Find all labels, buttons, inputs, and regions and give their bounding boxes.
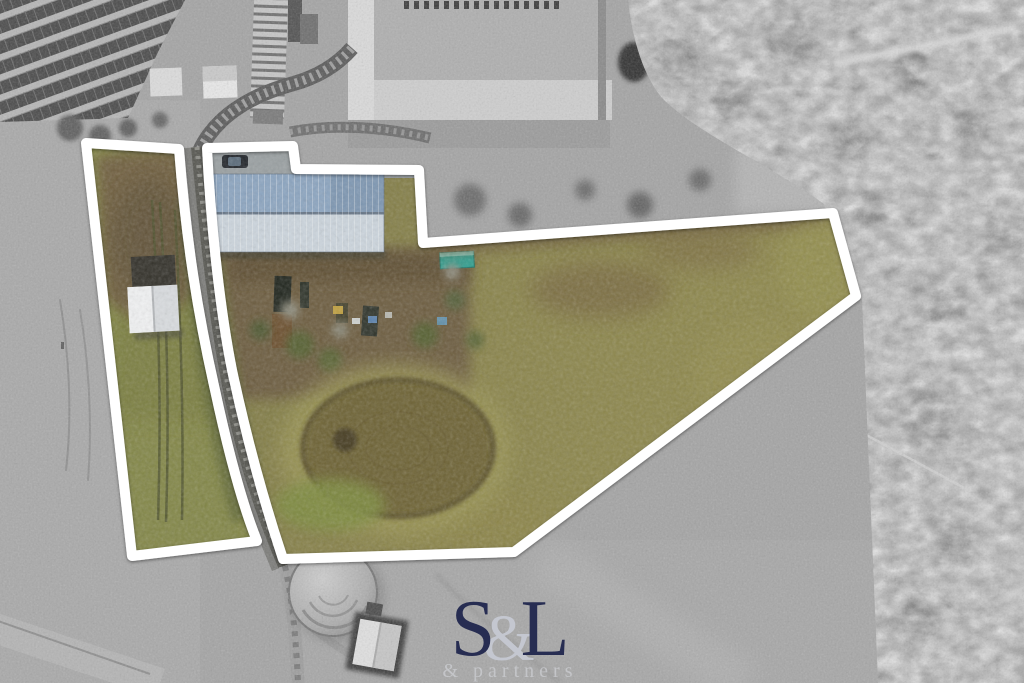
logo-subtitle: & partners [443, 660, 578, 682]
aerial-photo-stage: & S L & partners [0, 0, 1024, 683]
